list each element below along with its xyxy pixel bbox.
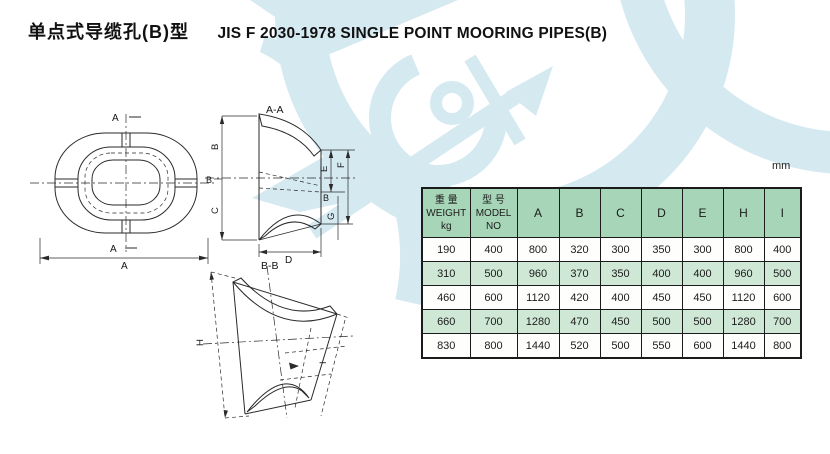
col-header-b: B: [559, 188, 600, 238]
plan-view-drawing: A A A: [30, 100, 215, 270]
watermark-anchor-arrow: [506, 66, 553, 116]
section-aa-dimensions: B C B E F B G D: [206, 116, 355, 265]
table-cell: 350: [600, 262, 641, 286]
section-aa-body: [205, 114, 355, 240]
table-cell: 400: [470, 238, 517, 262]
table-cell: 1440: [723, 334, 764, 359]
table-cell: 400: [764, 238, 801, 262]
weight-header-unit: kg: [423, 220, 470, 233]
table-cell: 500: [764, 262, 801, 286]
page-header: 单点式导缆孔(B)型 JIS F 2030-1978 SINGLE POINT …: [28, 18, 607, 44]
dim-label-a: A: [121, 261, 128, 270]
table-cell: 800: [470, 334, 517, 359]
table-cell: 300: [600, 238, 641, 262]
watermark-anchor-stock: [470, 58, 520, 142]
table-cell: 450: [641, 286, 682, 310]
dim-label-e: E: [319, 166, 330, 172]
col-header-h: H: [723, 188, 764, 238]
unit-label: mm: [772, 160, 790, 172]
section-marker-a-top: A: [112, 113, 119, 124]
col-header-e: E: [682, 188, 723, 238]
col-header-d: D: [641, 188, 682, 238]
table-cell: 1440: [517, 334, 559, 359]
table-row: 66070012804704505005001280700: [422, 310, 801, 334]
page-title-chinese: 单点式导缆孔(B)型: [28, 22, 189, 42]
table-cell: 190: [422, 238, 470, 262]
table-cell: 600: [470, 286, 517, 310]
table-cell: 400: [682, 262, 723, 286]
watermark-corner-curve: [633, 0, 830, 153]
dim-label-b-left: B: [210, 144, 221, 150]
watermark-anchor-eye: [436, 87, 468, 119]
table-cell: 700: [470, 310, 517, 334]
table-cell: 500: [470, 262, 517, 286]
col-header-weight: 重 量 WEIGHT kg: [422, 188, 470, 238]
table-row: 190400800320300350300800400: [422, 238, 801, 262]
table-cell: 420: [559, 286, 600, 310]
table-row: 310500960370350400400960500: [422, 262, 801, 286]
table-cell: 660: [422, 310, 470, 334]
watermark-tail: [398, 178, 413, 302]
watermark-inner-swirl: [380, 60, 496, 176]
table-cell: 1120: [723, 286, 764, 310]
table-cell: 450: [600, 310, 641, 334]
col-header-model: 型 号 MODEL NO: [470, 188, 517, 238]
section-aa-drawing: A-A B C B E: [205, 100, 355, 265]
dim-label-g: G: [326, 213, 337, 220]
dim-label-h: H: [195, 339, 206, 346]
table-cell: 960: [723, 262, 764, 286]
table-cell: 800: [764, 334, 801, 359]
cut-marker-b-right: B: [323, 193, 329, 203]
section-marker-a-bottom: A: [110, 244, 117, 255]
table-cell: 800: [723, 238, 764, 262]
table-cell: 1280: [723, 310, 764, 334]
table-cell: 450: [682, 286, 723, 310]
col-header-a: A: [517, 188, 559, 238]
table-cell: 800: [517, 238, 559, 262]
table-cell: 400: [600, 286, 641, 310]
model-header-zh: 型 号: [471, 194, 517, 207]
table-cell: 500: [641, 310, 682, 334]
table-cell: 370: [559, 262, 600, 286]
catalog-page: 单点式导缆孔(B)型 JIS F 2030-1978 SINGLE POINT …: [0, 0, 830, 454]
table-header-row: 重 量 WEIGHT kg 型 号 MODEL NO A B C D E H I: [422, 188, 801, 238]
section-bb-title: B-B: [261, 260, 279, 272]
cut-marker-b-left: B: [206, 175, 212, 185]
section-aa-title: A-A: [266, 104, 284, 116]
page-title-english: JIS F 2030-1978 SINGLE POINT MOORING PIP…: [217, 25, 607, 42]
table-cell: 310: [422, 262, 470, 286]
table-cell: 460: [422, 286, 470, 310]
table-cell: 960: [517, 262, 559, 286]
table-cell: 1280: [517, 310, 559, 334]
table-cell: 550: [641, 334, 682, 359]
table-cell: 500: [600, 334, 641, 359]
plan-width-dimension: A: [40, 238, 208, 270]
dim-label-f: F: [336, 162, 347, 168]
table-cell: 500: [682, 310, 723, 334]
weight-header-zh: 重 量: [423, 194, 470, 207]
col-header-i: I: [764, 188, 801, 238]
table-row: 46060011204204004504501120600: [422, 286, 801, 310]
table-cell: 700: [764, 310, 801, 334]
table-cell: 350: [641, 238, 682, 262]
dim-label-i: I: [318, 361, 328, 364]
plan-section-markers: A A: [110, 113, 141, 255]
table-cell: 400: [641, 262, 682, 286]
spec-table: 重 量 WEIGHT kg 型 号 MODEL NO A B C D E H I…: [421, 187, 802, 359]
table-cell: 600: [682, 334, 723, 359]
table-cell: 470: [559, 310, 600, 334]
table-cell: 600: [764, 286, 801, 310]
col-header-c: C: [600, 188, 641, 238]
section-bb-body: [203, 266, 353, 418]
table-cell: 1120: [517, 286, 559, 310]
table-cell: 320: [559, 238, 600, 262]
table-cell: 520: [559, 334, 600, 359]
table-cell: 830: [422, 334, 470, 359]
table-row: 83080014405205005506001440800: [422, 334, 801, 359]
table-cell: 300: [682, 238, 723, 262]
section-bb-drawing: B-B H I: [195, 258, 360, 423]
weight-header-en: WEIGHT: [423, 207, 470, 220]
model-header-en: MODEL NO: [471, 207, 517, 233]
dim-label-c: C: [210, 207, 221, 214]
spec-table-body: 1904008003203003503008004003105009603703…: [422, 238, 801, 359]
